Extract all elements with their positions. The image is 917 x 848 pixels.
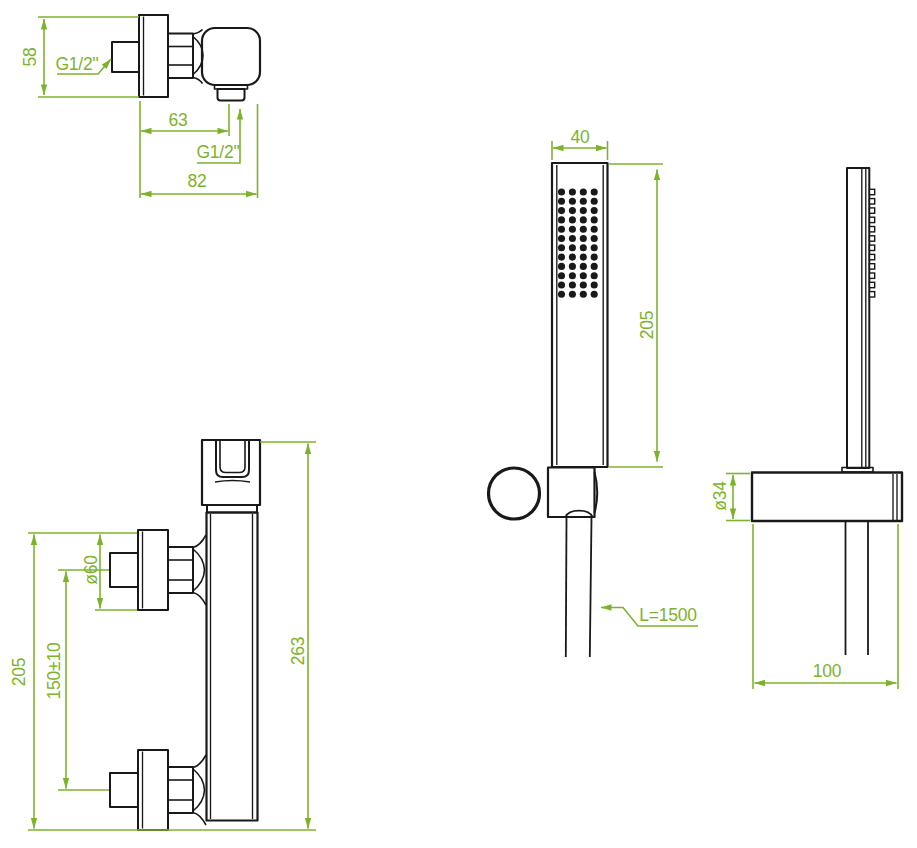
- nozzle-dot: [580, 291, 587, 298]
- nozzle-dot: [580, 188, 587, 195]
- nozzle-tooth: [870, 273, 875, 278]
- nozzle-dot: [580, 281, 587, 288]
- dim-205-label: 205: [637, 311, 657, 340]
- nozzle-tooth: [870, 245, 875, 250]
- nozzle-dot: [580, 263, 587, 270]
- background: [0, 0, 917, 848]
- nozzle-dot: [569, 263, 576, 270]
- dim-150-label: 150±10: [44, 642, 64, 700]
- nozzle-dot: [569, 207, 576, 214]
- nozzle-dot: [591, 207, 598, 214]
- nozzle-tooth: [870, 236, 875, 241]
- nozzle-dot: [580, 198, 587, 205]
- nozzle-tooth: [870, 217, 875, 222]
- nozzle-dot: [591, 235, 598, 242]
- dim-d34-label: ø34: [710, 481, 730, 511]
- nozzle-dot: [569, 281, 576, 288]
- nozzle-dot: [591, 254, 598, 261]
- nozzle-dot: [558, 291, 565, 298]
- nozzle-tooth: [870, 254, 875, 259]
- nozzle-dot: [569, 226, 576, 233]
- nozzle-dot: [558, 216, 565, 223]
- nozzle-dot: [580, 207, 587, 214]
- nozzle-dot: [580, 272, 587, 279]
- nozzle-dot: [580, 226, 587, 233]
- nozzle-tooth: [870, 189, 875, 194]
- nozzle-dot: [569, 198, 576, 205]
- nozzle-dot: [558, 198, 565, 205]
- nozzle-dot: [580, 244, 587, 251]
- dim-58-label: 58: [20, 47, 40, 66]
- nozzle-dot: [569, 254, 576, 261]
- nozzle-dot: [591, 263, 598, 270]
- nozzle-dot: [569, 244, 576, 251]
- nozzle-dot: [591, 244, 598, 251]
- nozzle-dot: [558, 235, 565, 242]
- nozzle-dot: [569, 216, 576, 223]
- dim-100-label: 100: [813, 661, 842, 681]
- hose-length-label: L=1500: [639, 605, 697, 625]
- nozzle-tooth: [870, 292, 875, 297]
- nozzle-dot: [591, 291, 598, 298]
- dim-82-label: 82: [187, 171, 206, 191]
- nozzle-dot: [569, 272, 576, 279]
- dim-263-label: 263: [288, 637, 308, 666]
- nozzle-dot: [580, 216, 587, 223]
- nozzle-dot: [591, 216, 598, 223]
- nozzle-tooth: [870, 227, 875, 232]
- nozzle-dot: [591, 226, 598, 233]
- dim-d60-label: ø60: [81, 555, 101, 585]
- nozzle-dot: [591, 272, 598, 279]
- outlet-thread-label: G1/2": [196, 142, 239, 162]
- nozzle-dot: [558, 272, 565, 279]
- nozzle-dot: [591, 281, 598, 288]
- dim-40-label: 40: [570, 127, 590, 147]
- nozzle-dot: [580, 235, 587, 242]
- nozzle-tooth: [870, 208, 875, 213]
- nozzle-dot: [558, 263, 565, 270]
- nozzle-dot: [580, 254, 587, 261]
- nozzle-dot: [591, 198, 598, 205]
- inlet-thread-label: G1/2": [55, 54, 98, 74]
- nozzle-dot: [558, 254, 565, 261]
- nozzle-dot: [569, 235, 576, 242]
- nozzle-dot: [558, 244, 565, 251]
- nozzle-dot: [558, 188, 565, 195]
- nozzle-dot: [569, 188, 576, 195]
- nozzle-dot: [558, 281, 565, 288]
- nozzle-tooth: [870, 282, 875, 287]
- technical-drawing-page: 58 G1/2" 63 G1/2" 82: [0, 0, 917, 848]
- nozzle-dot: [569, 291, 576, 298]
- nozzle-tooth: [870, 199, 875, 204]
- technical-drawing-canvas: 58 G1/2" 63 G1/2" 82: [0, 0, 917, 848]
- nozzle-tooth: [870, 264, 875, 269]
- nozzle-dot: [558, 226, 565, 233]
- nozzle-dot: [558, 207, 565, 214]
- dim-63-label: 63: [168, 110, 187, 130]
- nozzle-dot: [591, 188, 598, 195]
- hose-edge: [566, 518, 567, 657]
- dim-205-label: 205: [9, 658, 29, 687]
